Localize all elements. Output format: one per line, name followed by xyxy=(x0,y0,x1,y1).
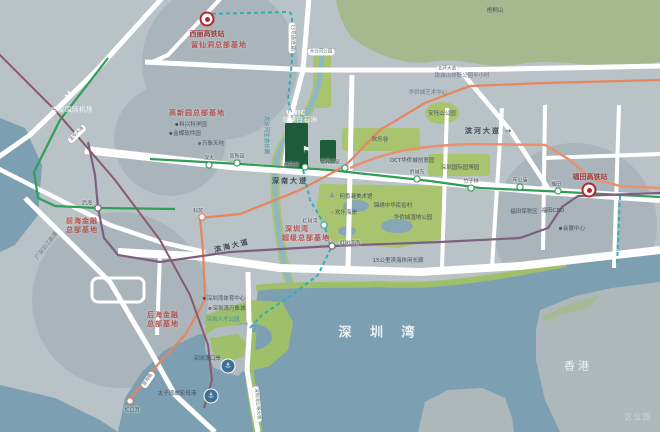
metro-station-dot xyxy=(414,176,421,183)
map-label: 太子湾邮轮母港 xyxy=(158,391,197,397)
poi-dot xyxy=(559,227,562,230)
port-icon: ⚓ xyxy=(204,389,219,404)
metro-station-label: 深大 xyxy=(204,155,214,162)
map-label: 深圳湾体育中心 xyxy=(203,296,246,302)
poi-dot xyxy=(208,307,211,310)
metro-station-label: 红树湾 xyxy=(302,218,317,225)
map-label: 深圳人才公园 xyxy=(206,317,239,323)
map-label: 香港 xyxy=(564,361,592,374)
metro-station-label: 高新园 xyxy=(229,153,244,160)
map-label: 欢乐谷 xyxy=(372,137,389,143)
map-label: 望海路 xyxy=(140,371,156,389)
poi-dot xyxy=(331,211,334,214)
map-label: 总部基地 xyxy=(147,320,179,328)
map-label: 梧桐山 xyxy=(487,8,504,14)
map-label: 华侨城艺术中心 xyxy=(409,90,448,96)
metro-station-dot xyxy=(95,205,102,212)
map-label: 银湖山郊野公园半小时 xyxy=(434,73,489,79)
map-label: 安托山公园 xyxy=(428,111,456,117)
map-label: 福田保税区 xyxy=(510,209,538,215)
map-label: 深圳湾 xyxy=(285,225,309,233)
plane-icon: ✈ xyxy=(65,89,76,104)
metro-station-label: 后海 xyxy=(82,200,92,207)
map-label: 宝安大道 xyxy=(67,124,88,145)
map-label: 福田高铁站 xyxy=(573,173,608,181)
poi-dot xyxy=(169,132,172,135)
map-label: 深圳湾公路大桥 xyxy=(252,386,262,422)
map-label: OCT华侨城创意园 xyxy=(390,158,435,164)
metro-station-dot xyxy=(468,185,475,192)
hsr-icon xyxy=(200,12,215,27)
port-icon: ⚓ xyxy=(221,359,236,374)
metro-station-label: 科苑 xyxy=(193,208,203,215)
map-label: 万象天地 xyxy=(198,141,224,147)
map-label: 华侨城湿地公园 xyxy=(394,215,433,221)
metro-station-label: 世界之窗 xyxy=(320,159,340,166)
metro-station-label: 车公庙 xyxy=(512,177,527,184)
metro-station-dot xyxy=(555,188,562,195)
metro-station-dot xyxy=(199,214,206,221)
metro-station-dot xyxy=(517,184,524,191)
metro-station-label: 蛇口港 xyxy=(124,407,139,414)
map-label: 深圳国际园博园 xyxy=(441,165,480,171)
map-label: 15公里滨海休闲长廊 xyxy=(373,258,424,264)
map-label: 高新园总部基地 xyxy=(169,109,225,117)
metro-station-label: 白石洲 xyxy=(283,162,298,169)
metro-station-dot xyxy=(342,165,349,172)
flag-icon: ⚑ xyxy=(302,138,310,157)
poi-dot xyxy=(175,123,178,126)
map-label: 前海金融 xyxy=(66,217,98,225)
map-labels-layer: UNIC 绿景白石洲 西丽高铁站留仙洞总部基地高新园总部基地深圳湾超级总部基地后… xyxy=(0,0,660,432)
map-label: 深南大道 xyxy=(272,177,308,185)
hsr-icon xyxy=(582,183,597,198)
map-label: 深圳湾万象城 xyxy=(208,306,245,312)
map-label: 深 圳 湾 xyxy=(338,327,421,342)
map-label: 滨海大道 xyxy=(214,238,251,255)
metro-station-dot xyxy=(127,398,134,405)
poi-dot xyxy=(203,297,206,300)
map-label: 后海金融 xyxy=(147,311,179,319)
map-label: 滨河大道 → xyxy=(465,127,513,135)
map-label: 大沙河公园 xyxy=(308,49,335,56)
metro-station-dot xyxy=(302,164,309,171)
map-label: 科兴科学园 xyxy=(175,122,207,128)
metro-station-dot xyxy=(206,162,213,169)
poi-dot xyxy=(198,142,201,145)
map-label: 欢乐海岸 xyxy=(331,210,357,216)
map-label: 会展中心 xyxy=(559,226,585,232)
map-label: 锦绣中华民俗村 xyxy=(374,203,413,209)
metro-station-label: 侨城东 xyxy=(409,169,424,176)
map-label: 何香凝美术馆 xyxy=(339,194,372,200)
map-label: 大沙河生态长廊 xyxy=(263,116,269,155)
map-label: 区位图 xyxy=(625,412,652,421)
project-name-line2: 绿景白石洲 xyxy=(283,116,318,123)
map-label: 留仙洞总部基地 xyxy=(191,41,247,49)
metro-station-dot xyxy=(329,243,336,250)
map-label: 福田CBD xyxy=(542,208,565,214)
metro-station-label: 竹子林 xyxy=(463,178,478,185)
metro-station-dot xyxy=(234,160,241,167)
pavilion-icon: ▲ xyxy=(329,182,334,201)
metro-station-label: 福田 xyxy=(551,181,561,188)
map-label: 13号线(在建) xyxy=(289,22,296,53)
map-label: 宝安国际机场 xyxy=(51,106,93,113)
map-label: 西丽高铁站 xyxy=(190,30,225,38)
map-label: 超级总部基地 xyxy=(282,234,330,242)
map-label: 总部基地 xyxy=(66,226,98,234)
location-map: UNIC 绿景白石洲 西丽高铁站留仙洞总部基地高新园总部基地深圳湾超级总部基地后… xyxy=(0,0,660,432)
metro-station-label: 红树湾南 xyxy=(340,240,360,247)
map-label: 广深沿江高速 xyxy=(34,231,59,261)
map-label: 深圳湾口岸 xyxy=(193,356,221,362)
map-label: 金蝶软件园 xyxy=(169,131,201,137)
metro-station-dot xyxy=(321,222,328,229)
map-label: 北环大道 xyxy=(436,66,458,73)
